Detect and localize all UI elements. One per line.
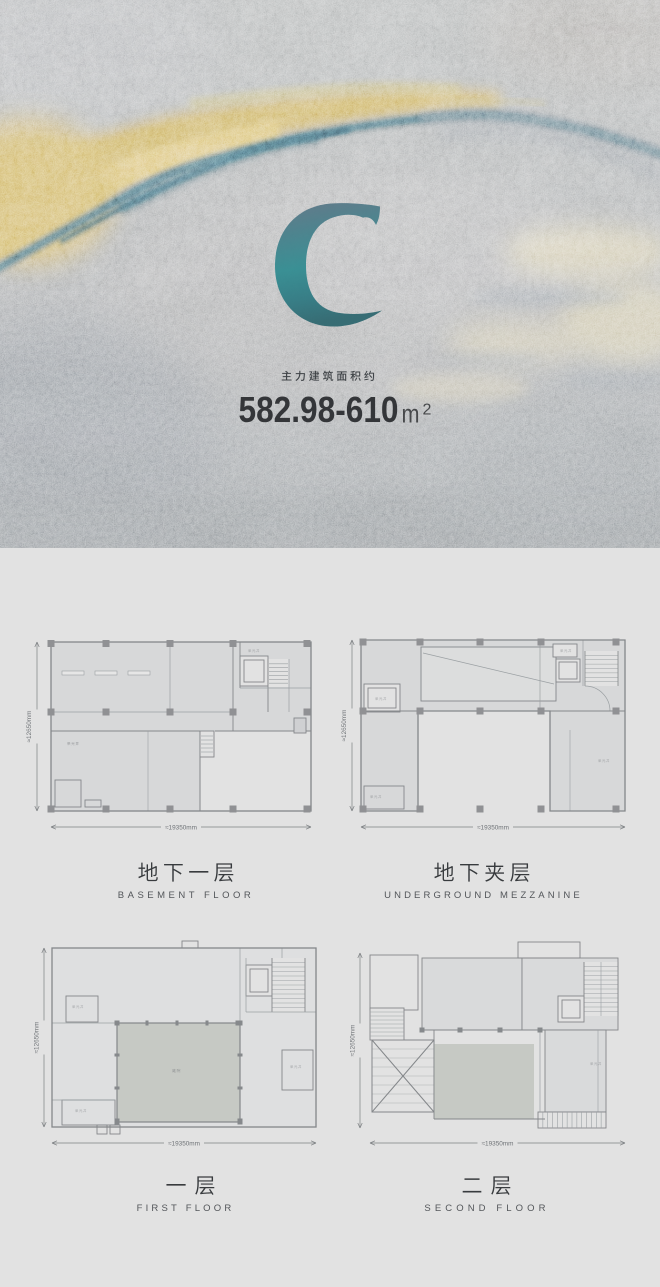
svg-text:SECOND FLOOR: SECOND FLOOR — [424, 1203, 549, 1214]
svg-text:m: m — [402, 398, 420, 428]
svg-text:BASEMENT FLOOR: BASEMENT FLOOR — [118, 890, 254, 901]
svg-text:2: 2 — [423, 402, 432, 419]
svg-text:≈12650mm: ≈12650mm — [341, 710, 348, 742]
svg-text:UNDERGROUND MEZZANINE: UNDERGROUND MEZZANINE — [384, 890, 583, 901]
svg-text:≈12650mm: ≈12650mm — [350, 1025, 357, 1057]
svg-text:FIRST FLOOR: FIRST FLOOR — [137, 1203, 235, 1214]
svg-text:≈19350mm: ≈19350mm — [482, 1140, 514, 1147]
svg-text:582.98-610: 582.98-610 — [239, 389, 399, 430]
svg-text:≈12650mm: ≈12650mm — [26, 711, 33, 743]
svg-text:≈12650mm: ≈12650mm — [34, 1022, 41, 1054]
svg-text:≈19350mm: ≈19350mm — [168, 1140, 200, 1147]
svg-text:≈19350mm: ≈19350mm — [165, 824, 197, 831]
svg-text:≈19350mm: ≈19350mm — [477, 824, 509, 831]
